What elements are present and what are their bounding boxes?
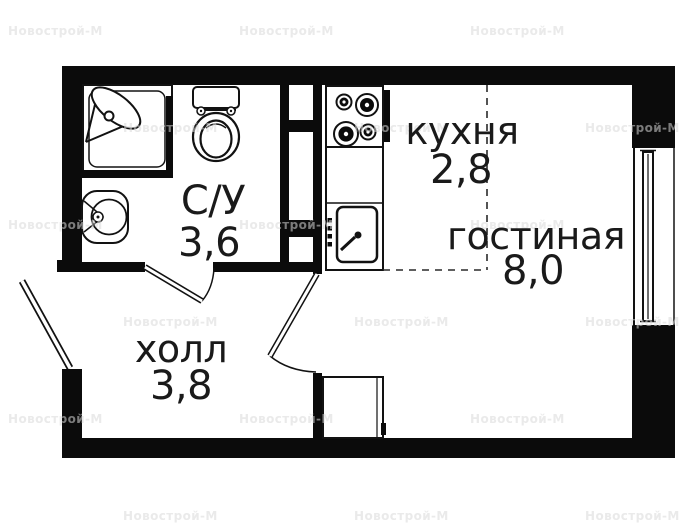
room-name-bathroom: С/У [181,181,245,221]
shower-icon [82,80,173,178]
room-area-kitchen: 2,8 [430,150,492,190]
room-area-bathroom: 3,6 [178,223,240,263]
wall-right-lower [632,325,675,458]
room-area-hall: 3,8 [150,366,212,406]
wall-left-upper [62,66,82,272]
wall-shaft-right [313,85,322,274]
wall-top [62,66,675,85]
wall-stove-side [383,90,390,142]
wall-shaft-left [280,85,289,262]
bathroom-sink-icon [82,191,128,243]
window-icon [634,148,674,325]
floor-plan: Новострой-МНовострой-МНовострой-МНовостр… [0,0,700,525]
wall-bathroom-bottom-left [82,262,145,272]
toilet-icon [193,87,239,161]
kitchen-sink-icon [326,147,383,270]
vent-shaft-icon [289,120,313,237]
wardrobe-icon [323,377,386,438]
floor-plan-drawing [0,0,700,525]
wall-door-stub [313,373,322,438]
living-room-door-icon [270,274,317,372]
wall-bottom [62,438,675,458]
bathroom-door-icon [145,267,214,301]
entrance-jamb [57,260,62,272]
stove-icon [326,86,383,147]
room-name-kitchen: кухня [405,112,518,150]
room-area-living: 8,0 [502,251,564,291]
entrance-door-icon [22,281,70,368]
wall-right-upper [632,66,675,148]
